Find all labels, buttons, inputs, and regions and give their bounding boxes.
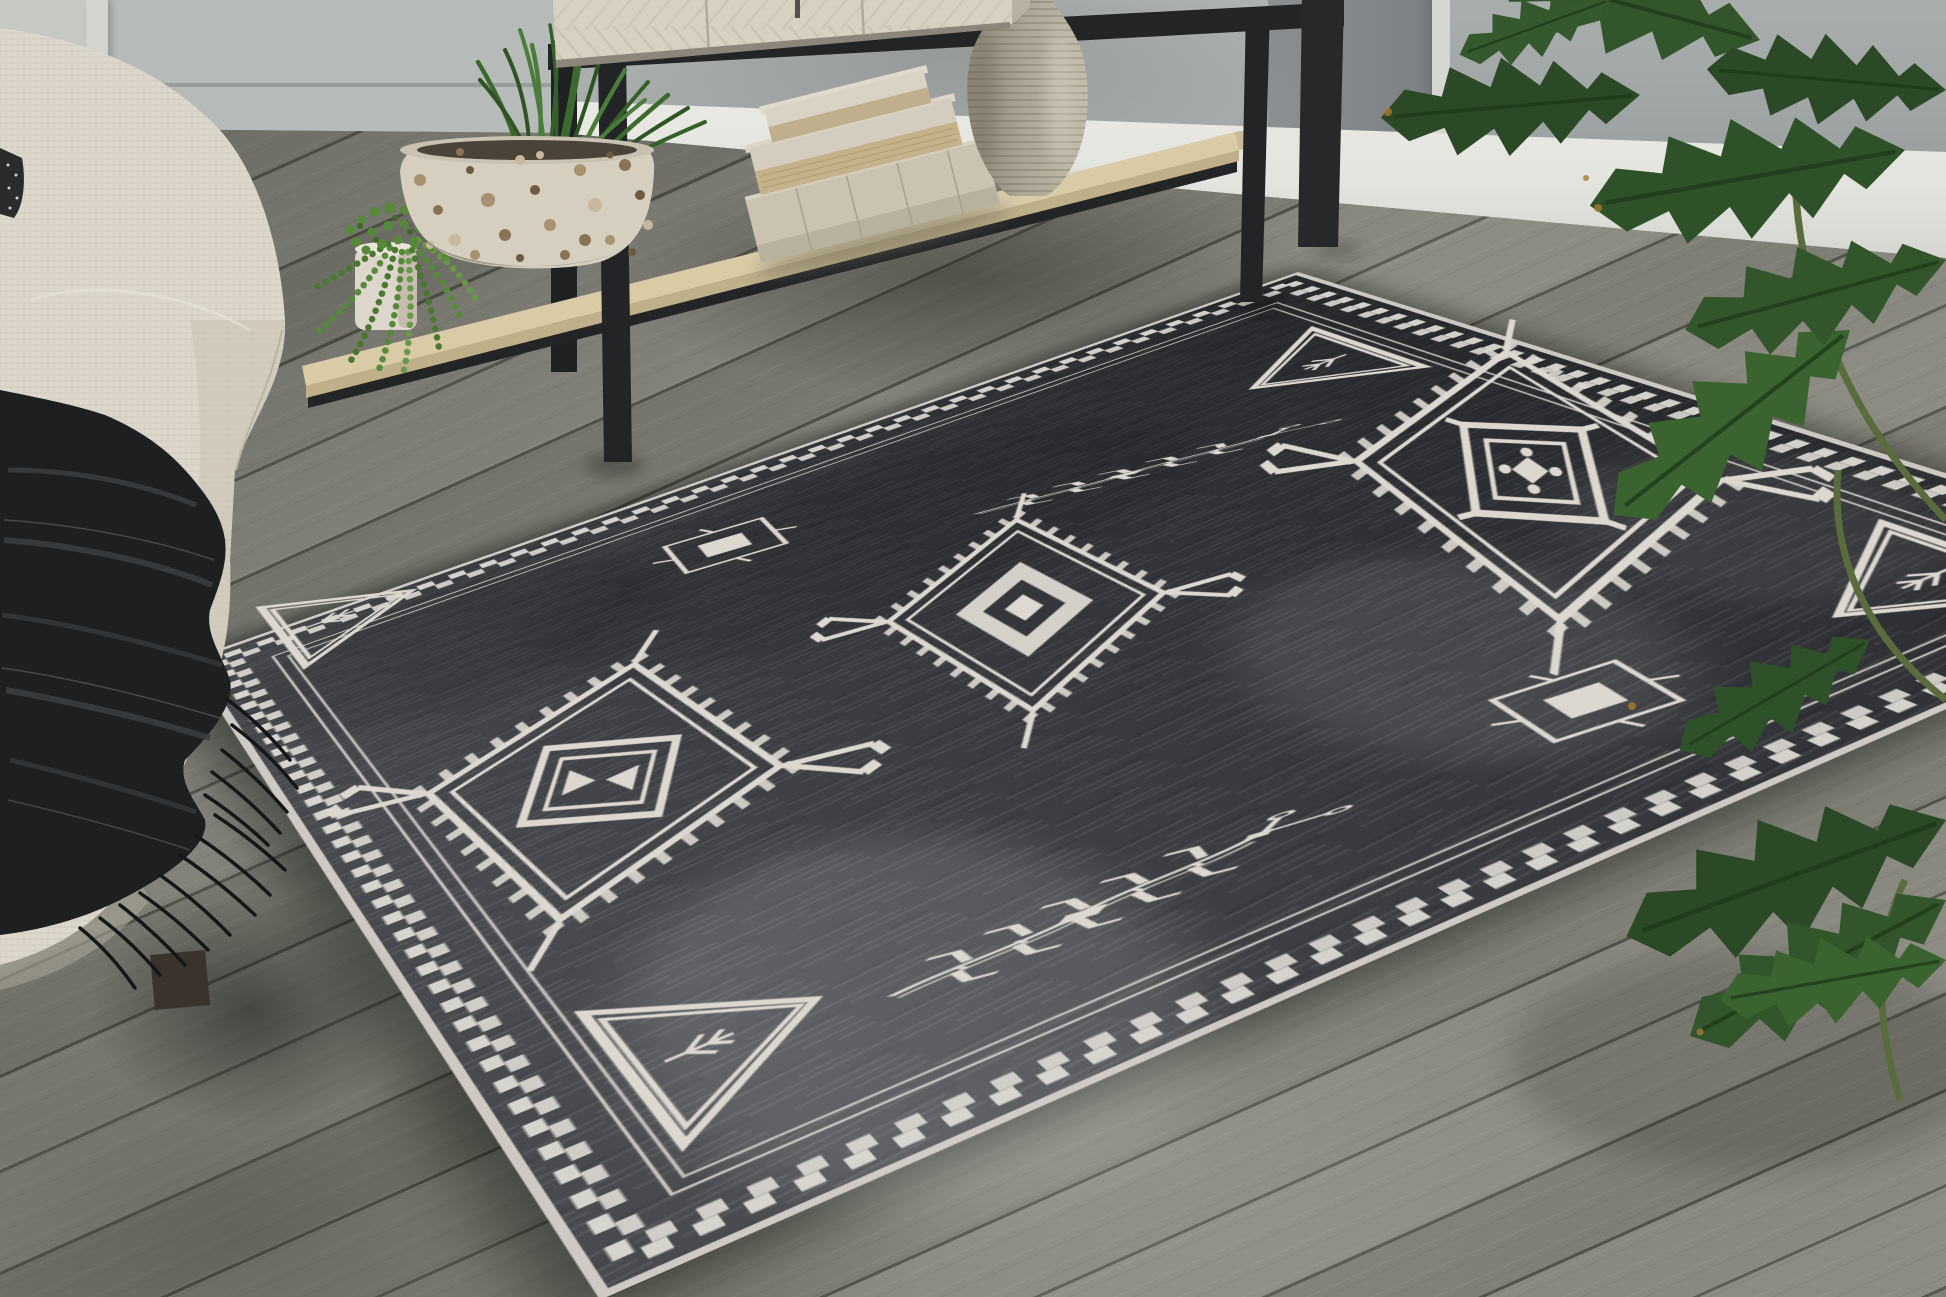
philodendron-plant: [1377, 0, 1946, 1170]
cabinet-hinge: [795, 0, 800, 18]
console-leg: [1298, 0, 1344, 247]
living-room-scene: Charcoal gray area rug with distressed w…: [0, 0, 1946, 1297]
throw-blanket: [0, 390, 297, 988]
console-leg: [1240, 8, 1270, 302]
